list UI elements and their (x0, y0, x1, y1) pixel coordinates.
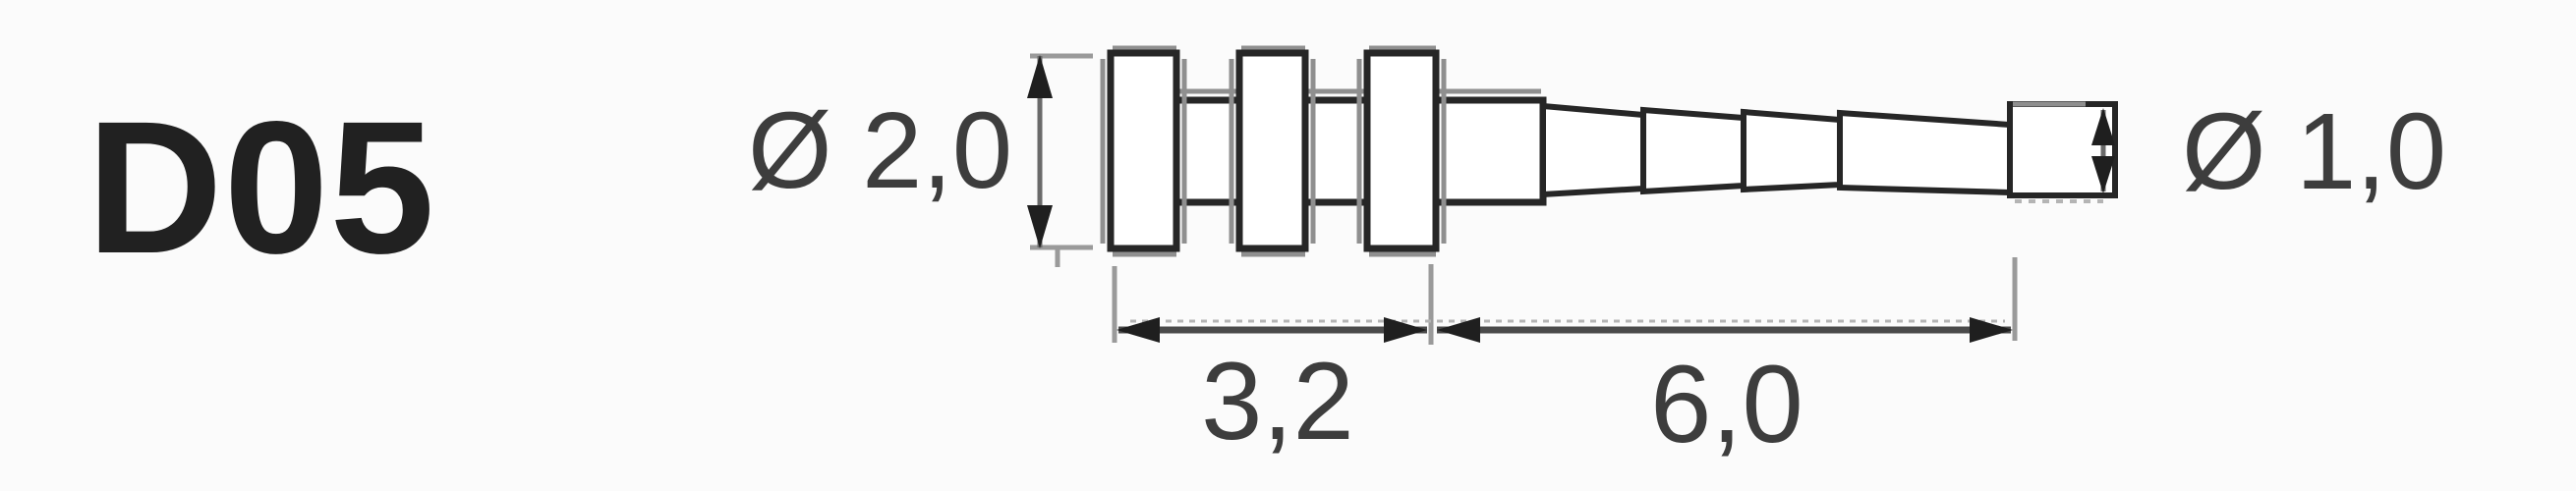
drawing-canvas: D05 (0, 0, 2576, 491)
dimension-diameter-right: Ø 1,0 (2091, 91, 2446, 212)
flange-2 (1239, 53, 1305, 248)
flange-3 (1367, 53, 1436, 248)
dimension-diameter-left: Ø 2,0 (748, 55, 1093, 267)
taper-section (1543, 104, 2115, 201)
dimension-lengths: 3,2 6,0 (1115, 257, 2015, 465)
flange-section (1103, 48, 1543, 254)
technical-drawing: D05 (0, 0, 2576, 491)
length-flanged-label: 3,2 (1201, 340, 1354, 463)
dia-left-arrow-up (1027, 55, 1053, 98)
length-flanged-arrow-left (1116, 317, 1160, 343)
dia-left-arrow-down (1027, 205, 1053, 248)
length-tapered-label: 6,0 (1650, 343, 1803, 465)
part-code-label: D05 (86, 82, 435, 293)
flange-1 (1111, 53, 1176, 248)
barb-segment-4 (1840, 113, 2010, 192)
barb-segment-1 (1543, 106, 1643, 194)
shaft-segment-3 (1436, 100, 1543, 202)
tip-cylinder (2010, 104, 2115, 195)
length-tapered-arrow-left (1437, 317, 1480, 343)
barb-segment-3 (1744, 112, 1840, 190)
barb-segment-2 (1643, 110, 1744, 191)
dia-left-label: Ø 2,0 (748, 90, 1012, 211)
dia-right-label: Ø 1,0 (2182, 91, 2446, 212)
